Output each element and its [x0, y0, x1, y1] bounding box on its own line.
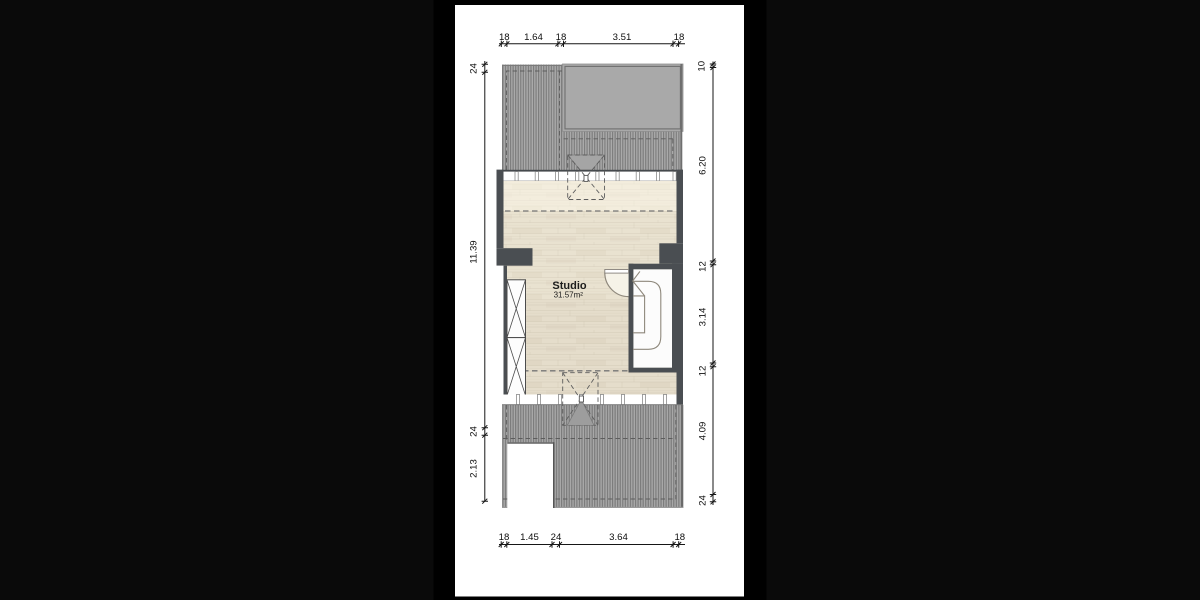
svg-text:18: 18	[499, 32, 510, 43]
svg-text:12: 12	[698, 366, 709, 377]
svg-text:2.13: 2.13	[468, 459, 479, 478]
svg-text:3.14: 3.14	[698, 307, 709, 326]
svg-text:24: 24	[468, 63, 479, 74]
svg-text:10: 10	[697, 61, 708, 72]
svg-text:11.39: 11.39	[468, 240, 479, 263]
svg-text:24: 24	[698, 495, 709, 506]
svg-text:4.09: 4.09	[698, 422, 709, 441]
svg-text:24: 24	[551, 532, 562, 543]
svg-text:18: 18	[674, 532, 685, 543]
svg-text:3.51: 3.51	[613, 32, 632, 43]
svg-text:18: 18	[674, 32, 685, 43]
svg-text:24: 24	[468, 426, 479, 437]
svg-text:1.45: 1.45	[520, 532, 539, 543]
svg-text:18: 18	[556, 32, 567, 43]
svg-text:18: 18	[499, 532, 510, 543]
svg-text:1.64: 1.64	[524, 32, 543, 43]
svg-text:31.57m²: 31.57m²	[554, 291, 584, 300]
svg-text:12: 12	[698, 261, 709, 272]
svg-text:3.64: 3.64	[609, 532, 628, 543]
svg-text:6.20: 6.20	[698, 156, 709, 175]
